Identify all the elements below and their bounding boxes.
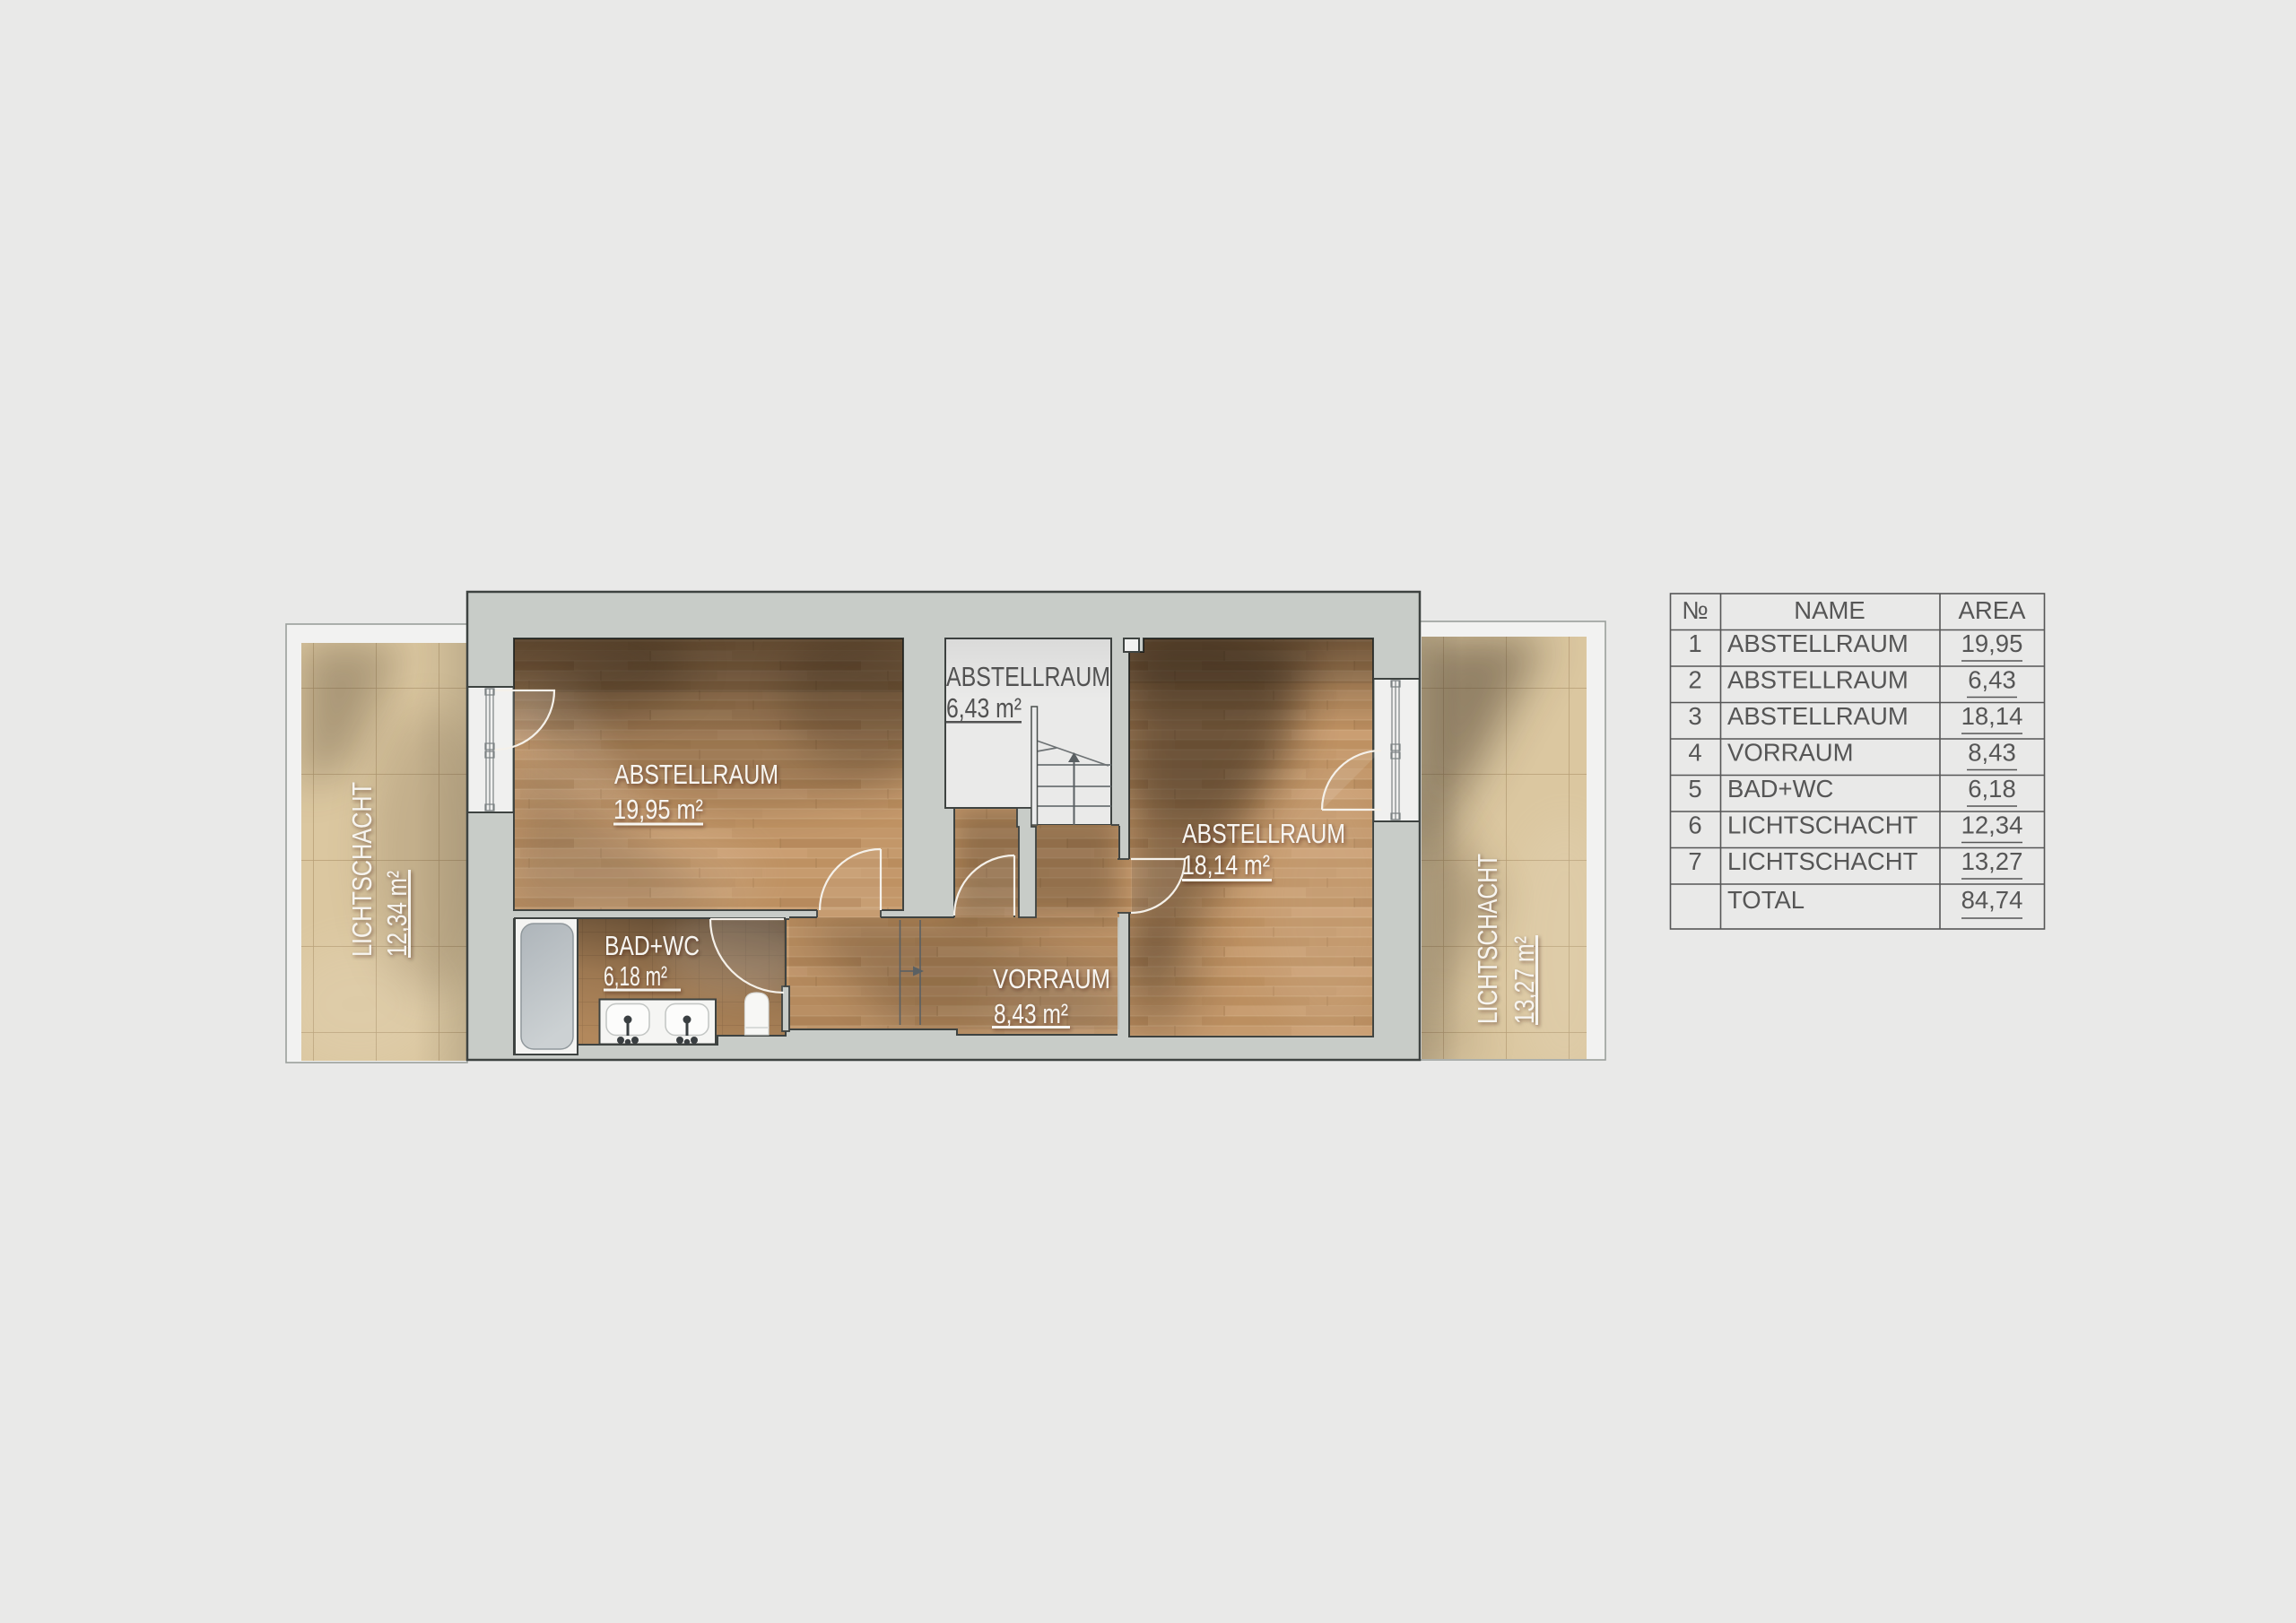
svg-text:6,43: 6,43 [1968, 666, 2016, 694]
svg-text:NAME: NAME [1794, 596, 1865, 624]
svg-text:12,34: 12,34 [1961, 811, 2023, 839]
svg-text:ABSTELLRAUM: ABSTELLRAUM [614, 759, 778, 790]
svg-text:6,18: 6,18 [1968, 775, 2016, 803]
svg-text:6,43 m²: 6,43 m² [946, 692, 1022, 724]
svg-text:7: 7 [1688, 847, 1701, 875]
svg-text:AREA: AREA [1959, 596, 2027, 624]
svg-text:VORRAUM: VORRAUM [1727, 739, 1854, 767]
svg-text:8,43: 8,43 [1968, 739, 2016, 767]
svg-text:LICHTSCHACHT: LICHTSCHACHT [1727, 811, 1918, 839]
svg-text:2: 2 [1688, 666, 1701, 694]
svg-text:VORRAUM: VORRAUM [993, 963, 1110, 994]
svg-text:TOTAL: TOTAL [1727, 886, 1805, 914]
svg-text:BAD+WC: BAD+WC [1727, 775, 1833, 803]
svg-text:LICHTSCHACHT: LICHTSCHACHT [1472, 854, 1503, 1024]
svg-text:ABSTELLRAUM: ABSTELLRAUM [946, 661, 1110, 692]
svg-text:ABSTELLRAUM: ABSTELLRAUM [1182, 818, 1345, 849]
svg-text:8,43 m²: 8,43 m² [994, 998, 1068, 1029]
svg-text:5: 5 [1688, 775, 1701, 803]
svg-text:ABSTELLRAUM: ABSTELLRAUM [1727, 629, 1909, 657]
svg-text:6,18 m²: 6,18 m² [604, 960, 667, 992]
svg-text:BAD+WC: BAD+WC [604, 930, 700, 961]
svg-text:18,14 m²: 18,14 m² [1182, 849, 1270, 881]
svg-text:ABSTELLRAUM: ABSTELLRAUM [1727, 666, 1909, 694]
svg-text:ABSTELLRAUM: ABSTELLRAUM [1727, 702, 1909, 730]
svg-text:13,27: 13,27 [1961, 847, 2023, 875]
svg-text:LICHTSCHACHT: LICHTSCHACHT [346, 782, 378, 957]
svg-text:84,74: 84,74 [1961, 886, 2023, 914]
svg-text:1: 1 [1688, 629, 1701, 657]
svg-text:19,95: 19,95 [1961, 629, 2023, 657]
svg-text:18,14: 18,14 [1961, 702, 2023, 730]
svg-text:4: 4 [1688, 739, 1701, 767]
svg-text:3: 3 [1688, 702, 1701, 730]
svg-text:13,27 m²: 13,27 m² [1509, 936, 1540, 1024]
svg-text:№: № [1682, 596, 1709, 624]
svg-text:6: 6 [1688, 811, 1701, 839]
svg-text:LICHTSCHACHT: LICHTSCHACHT [1727, 847, 1918, 875]
svg-text:19,95 m²: 19,95 m² [613, 794, 703, 825]
svg-text:12,34 m²: 12,34 m² [381, 871, 413, 957]
